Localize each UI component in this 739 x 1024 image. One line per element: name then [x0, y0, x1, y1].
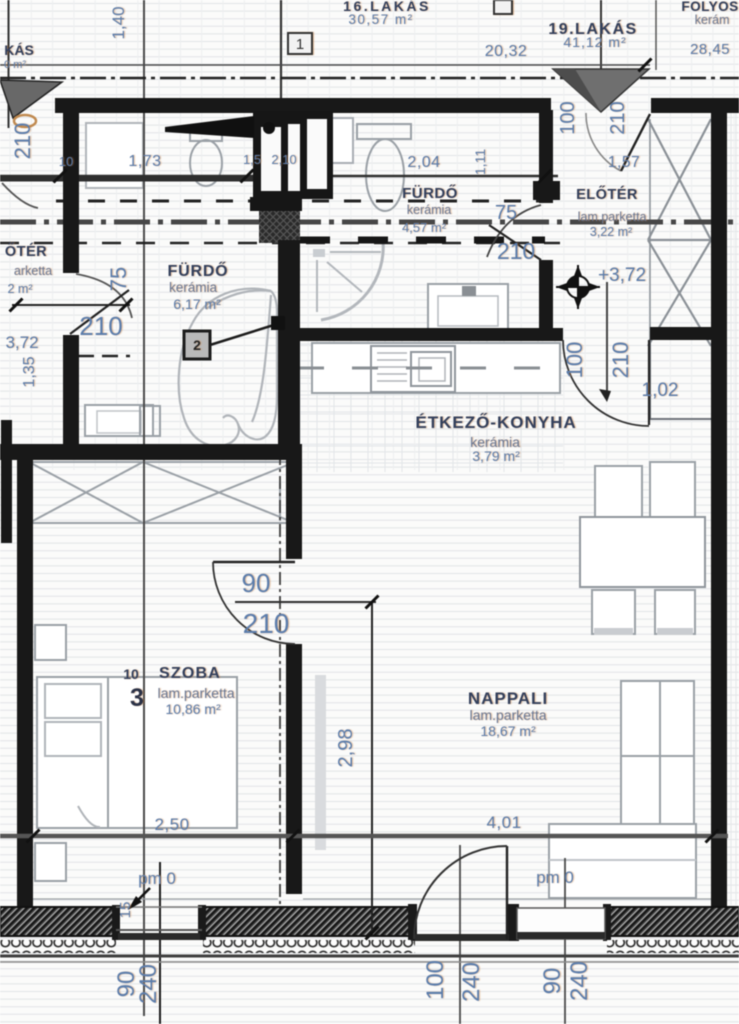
svg-text:240: 240	[135, 964, 162, 1004]
svg-text:4,57 m²: 4,57 m²	[402, 220, 447, 235]
svg-text:10: 10	[123, 666, 139, 682]
svg-text:ELŐTÉR: ELŐTÉR	[576, 185, 638, 203]
svg-text:lam.parketta: lam.parketta	[578, 210, 647, 224]
svg-text:3,79 m²: 3,79 m²	[472, 448, 520, 464]
svg-text:2,10: 2,10	[271, 152, 296, 167]
svg-text:210: 210	[79, 311, 122, 341]
svg-text:28,45: 28,45	[690, 41, 730, 58]
svg-text:100: 100	[422, 960, 449, 1000]
svg-text:+3,72: +3,72	[598, 265, 646, 286]
svg-text:10,86 m²: 10,86 m²	[165, 701, 221, 717]
svg-text:2 m²: 2 m²	[8, 282, 33, 296]
svg-text:3,72: 3,72	[5, 333, 38, 352]
svg-text:75: 75	[106, 267, 131, 291]
svg-text:2,98: 2,98	[335, 729, 357, 768]
svg-text:10: 10	[59, 154, 73, 169]
svg-text:100: 100	[562, 342, 587, 379]
svg-text:lam.parketta: lam.parketta	[469, 707, 546, 723]
svg-text:210: 210	[608, 342, 633, 379]
svg-text:3,22 m²: 3,22 m²	[590, 225, 632, 239]
svg-text:arketta: arketta	[14, 264, 52, 278]
svg-text:20,32: 20,32	[485, 43, 528, 60]
svg-text:15: 15	[117, 902, 134, 919]
svg-text:kerámia: kerámia	[169, 280, 218, 295]
svg-text:1: 1	[296, 36, 304, 53]
svg-text:ÉTKEZŐ-KONYHA: ÉTKEZŐ-KONYHA	[415, 413, 576, 432]
svg-text:100: 100	[557, 101, 579, 134]
svg-text:210: 210	[607, 101, 629, 134]
svg-text:1,40: 1,40	[109, 6, 128, 39]
svg-text:0 m²: 0 m²	[4, 59, 26, 71]
svg-text:2,04: 2,04	[407, 154, 440, 171]
svg-text:kerám: kerám	[695, 13, 730, 27]
svg-text:1,73: 1,73	[128, 153, 161, 170]
svg-text:210: 210	[10, 123, 35, 160]
svg-text:75: 75	[495, 202, 517, 224]
svg-text:90: 90	[242, 568, 271, 598]
svg-text:210: 210	[497, 238, 535, 264]
svg-text:3: 3	[130, 684, 144, 712]
svg-text:NAPPALI: NAPPALI	[468, 689, 548, 708]
svg-text:240: 240	[566, 961, 593, 1001]
svg-text:18,67 m²: 18,67 m²	[480, 723, 536, 739]
svg-text:2: 2	[193, 337, 201, 353]
svg-text:ŐTÉR: ŐTÉR	[5, 242, 47, 260]
svg-text:FOLYOS: FOLYOS	[681, 0, 738, 14]
svg-text:pm 0: pm 0	[138, 869, 176, 888]
svg-text:1,5: 1,5	[243, 152, 261, 167]
svg-text:FÜRDŐ: FÜRDŐ	[402, 184, 458, 202]
svg-text:2,50: 2,50	[154, 815, 189, 834]
svg-text:240: 240	[458, 962, 485, 1002]
svg-text:6,17 m²: 6,17 m²	[173, 296, 221, 312]
svg-text:lam.parketta: lam.parketta	[157, 685, 234, 701]
svg-text:SZOBA: SZOBA	[159, 665, 221, 682]
svg-text:41,12 m²: 41,12 m²	[563, 34, 626, 50]
svg-text:kerámia: kerámia	[407, 203, 452, 217]
svg-text:1,11: 1,11	[472, 149, 488, 175]
svg-text:1,02: 1,02	[642, 380, 679, 401]
svg-text:pm 0: pm 0	[536, 868, 574, 887]
svg-text:4,01: 4,01	[486, 813, 521, 832]
svg-text:210: 210	[243, 608, 290, 639]
svg-text:1,57: 1,57	[608, 154, 640, 171]
svg-text:KÁS: KÁS	[4, 42, 34, 58]
svg-text:1,35: 1,35	[21, 356, 38, 387]
svg-text:90: 90	[539, 968, 566, 995]
svg-text:30,57 m²: 30,57 m²	[348, 12, 413, 27]
svg-text:FÜRDŐ: FÜRDŐ	[168, 261, 229, 280]
